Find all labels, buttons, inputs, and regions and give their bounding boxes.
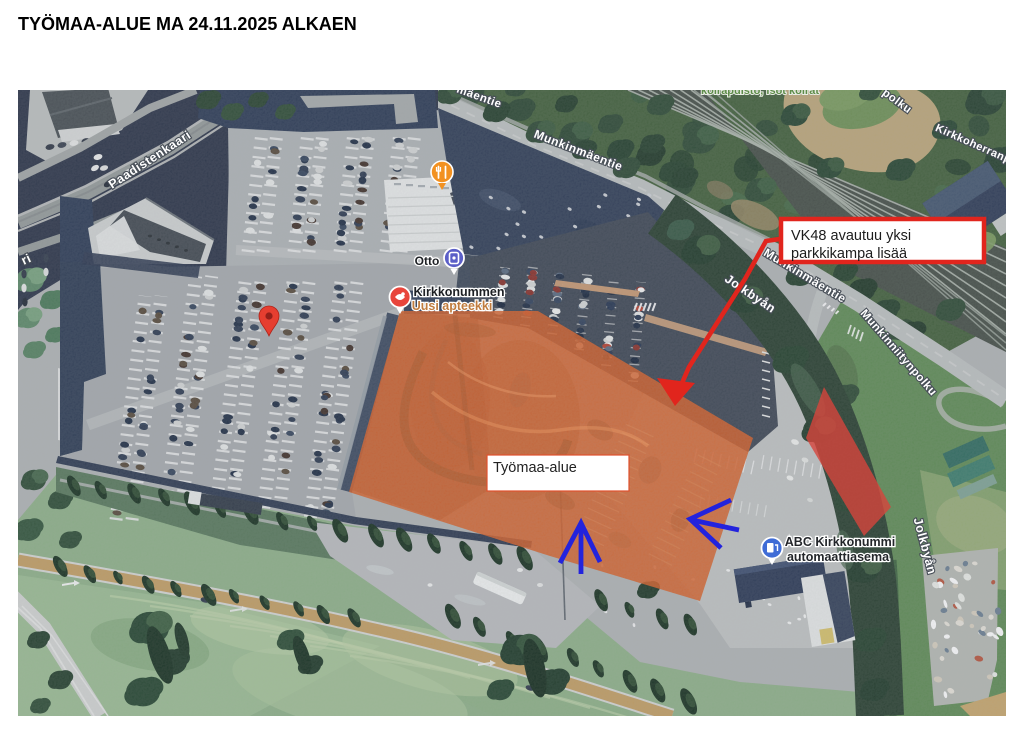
svg-text:VK48 avautuu yksi: VK48 avautuu yksi (791, 228, 911, 244)
svg-text:Uusi apteekki: Uusi apteekki (412, 299, 493, 313)
svg-text:parkkikampa lisää: parkkikampa lisää (791, 246, 908, 262)
svg-text:koirapuisto, isot koirat: koirapuisto, isot koirat (701, 90, 819, 97)
svg-text:Kirkkonummen: Kirkkonummen (414, 285, 505, 299)
svg-text:Otto: Otto (415, 254, 440, 268)
svg-text:ABC Kirkkonummi: ABC Kirkkonummi (785, 535, 895, 549)
svg-text:automaattiasema: automaattiasema (787, 550, 890, 564)
svg-text:Työmaa-alue: Työmaa-alue (493, 460, 577, 476)
